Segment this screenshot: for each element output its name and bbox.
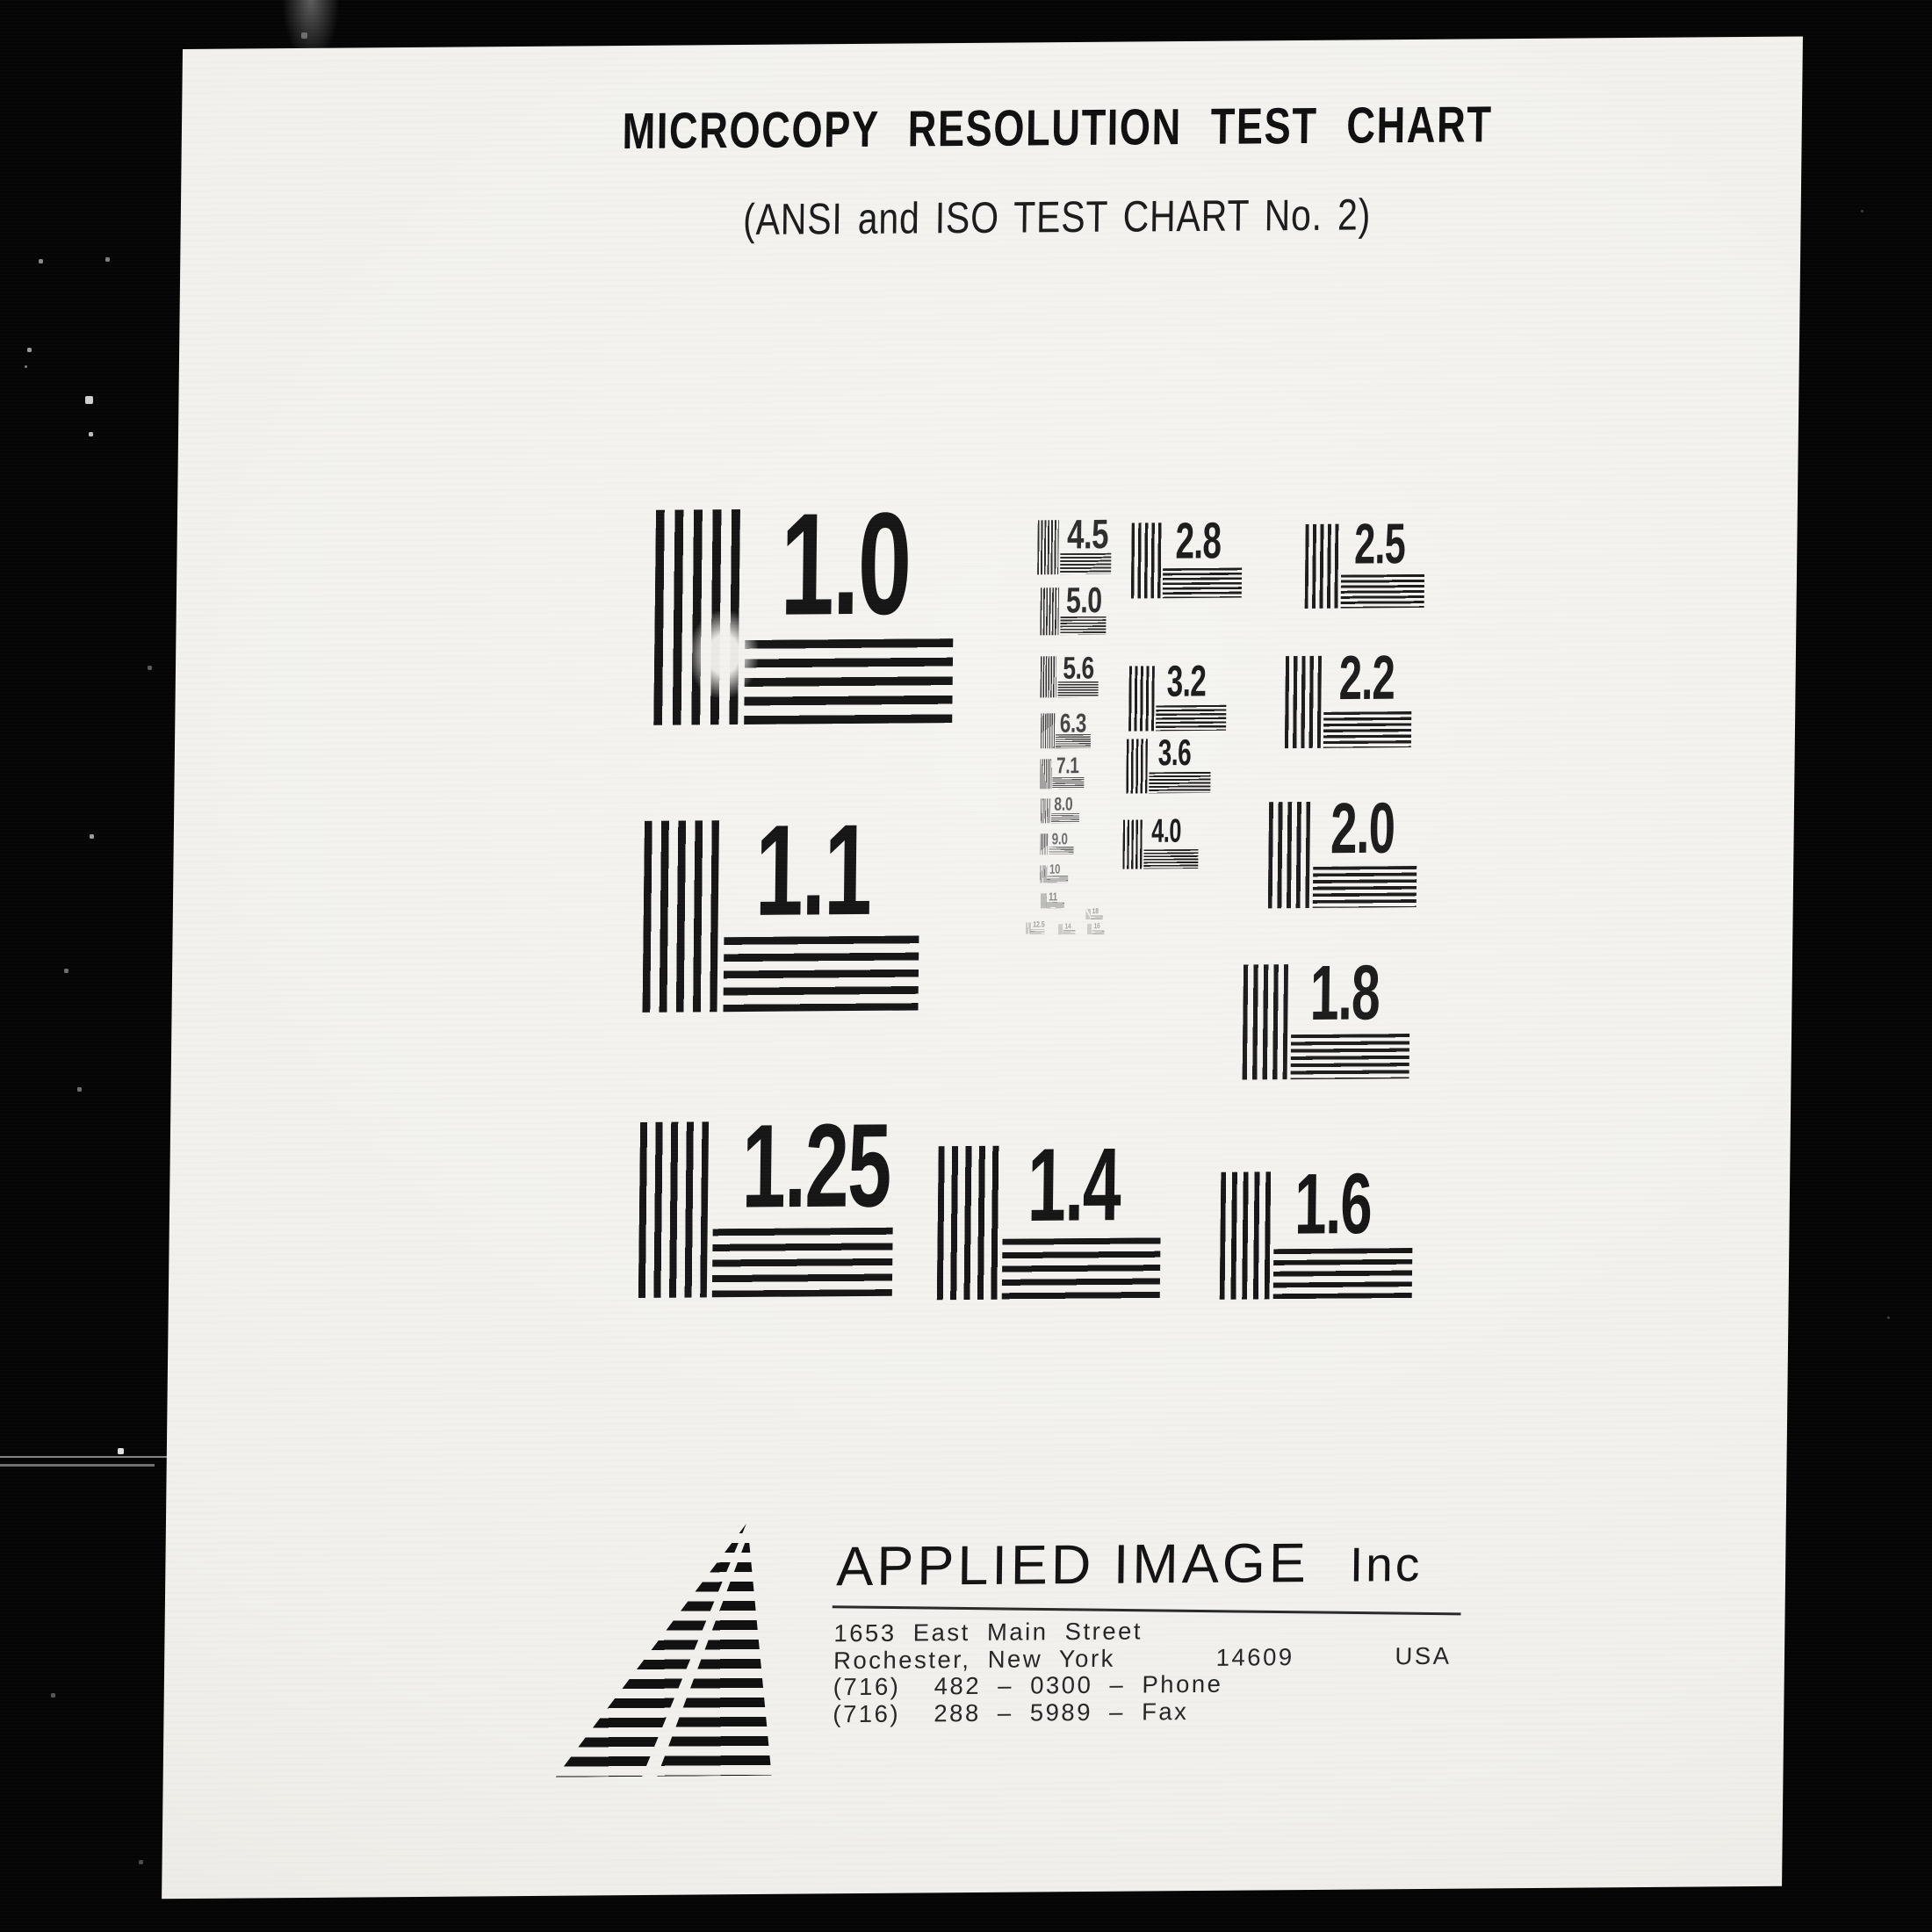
pattern-label: 4.0 [1151,819,1198,846]
pattern-label: 1.6 [1294,1171,1414,1238]
pattern-3-6: 3.6 [1126,739,1211,794]
pattern-11: 11 [1041,893,1064,908]
vertical-bars [1243,964,1289,1079]
pattern-1-4: 1.4 [937,1144,1162,1300]
address-block: 1653 East Main Street Rochester, New Yor… [833,1616,1452,1728]
pattern-10: 10 [1040,865,1069,883]
pattern-label: 16 [1093,924,1104,930]
pattern-6-3: 6.3 [1041,713,1091,748]
vertical-bars [638,1121,710,1298]
horizontal-bars [1313,866,1417,908]
pattern-4-0: 4.0 [1122,819,1198,869]
pattern-14: 14 [1058,924,1075,934]
horizontal-bars [1273,1248,1413,1299]
fax-line: (716) 288 – 5989 – Fax [833,1696,1451,1727]
pattern-label: 8.0 [1054,798,1079,813]
vertical-bars [1026,922,1030,934]
horizontal-bars [1340,574,1424,608]
horizontal-bars [723,935,919,1012]
address-city: Rochester, New York 14609 USA [833,1642,1452,1674]
vertical-bars [1040,865,1047,883]
pattern-label: 10 [1049,865,1069,876]
horizontal-bars [1063,930,1076,934]
horizontal-bars [1091,915,1103,919]
film-scan-background: MICROCOPY RESOLUTION TEST CHART (ANSI an… [0,0,1932,1932]
pattern-1-1: 1.1 [642,818,919,1012]
test-chart-card: MICROCOPY RESOLUTION TEST CHART (ANSI an… [162,37,1803,1900]
pattern-2-8: 2.8 [1131,523,1243,599]
pattern-label: 14 [1064,924,1075,930]
vertical-bars [1305,524,1339,609]
horizontal-bars [1092,930,1105,934]
pattern-2-2: 2.2 [1285,655,1412,748]
pattern-2-5: 2.5 [1305,523,1425,609]
pattern-3-2: 3.2 [1128,666,1227,732]
pattern-label: 7.1 [1056,759,1085,776]
pattern-label: 2.8 [1175,523,1243,563]
horizontal-bars [1149,772,1210,794]
vertical-bars [1220,1171,1271,1299]
pattern-label: 2.0 [1330,801,1417,857]
pattern-label: 18 [1092,909,1103,915]
vertical-bars [1285,656,1322,748]
vertical-bars [1041,713,1055,748]
pattern-label: 2.2 [1338,655,1412,704]
pattern-16: 16 [1087,924,1104,934]
pattern-label: 4.5 [1067,520,1112,552]
horizontal-bars [745,638,954,724]
pattern-label: 1.8 [1309,963,1410,1025]
scratch-line [0,1464,155,1467]
vertical-bars [1131,523,1162,598]
pattern-2-0: 2.0 [1268,801,1417,908]
chart-subtitle: (ANSI and ISO TEST CHART No. 2) [312,186,1801,249]
pattern-label: 3.6 [1158,739,1211,768]
vertical-bars [1128,666,1155,731]
horizontal-bars [1323,711,1411,748]
vertical-bars [1040,833,1049,854]
vertical-bars [1041,798,1050,823]
pattern-label: 5.0 [1066,588,1107,616]
pattern-label: 9.0 [1052,833,1074,846]
pattern-8-0: 8.0 [1041,798,1079,823]
vertical-bars [1037,520,1059,574]
horizontal-bars [1291,1034,1410,1079]
vertical-bars [1041,656,1057,697]
pattern-label: 2.5 [1354,523,1424,568]
pattern-label: 1.0 [780,508,955,623]
company-name: APPLIED IMAGE [836,1532,1309,1597]
pattern-label: 5.6 [1063,656,1099,681]
emulsion-damage-spot [689,611,759,698]
scratch-line [0,1456,186,1458]
pattern-label: 11 [1049,893,1064,902]
pattern-label: 1.4 [1027,1144,1162,1226]
applied-image-logo-triangle-icon [556,1524,775,1777]
pattern-9-0: 9.0 [1040,833,1073,854]
pattern-18: 18 [1086,909,1103,919]
pattern-label: 12.5 [1033,922,1045,928]
vertical-bars [642,820,719,1013]
horizontal-bars [1002,1238,1161,1300]
pattern-1-6: 1.6 [1220,1171,1414,1300]
company-wordmark: APPLIED IMAGEInc [836,1531,1423,1598]
horizontal-bars [712,1227,893,1297]
dust-specks [0,0,1,1]
horizontal-bars [1163,568,1242,598]
vertical-bars [1268,802,1311,908]
horizontal-bars [1031,929,1045,934]
horizontal-bars [1156,705,1226,732]
company-suffix: Inc [1350,1537,1423,1592]
pattern-label: 3.2 [1167,666,1228,700]
pattern-label: 1.1 [755,818,920,920]
vertical-bars [937,1146,999,1301]
chart-title: MICROCOPY RESOLUTION TEST CHART [314,93,1803,163]
vertical-bars [1122,819,1143,869]
pattern-5-0: 5.0 [1040,588,1106,636]
pattern-label: 6.3 [1060,713,1091,734]
vertical-bars [1040,588,1059,635]
pattern-7-1: 7.1 [1040,759,1085,789]
pattern-1-25: 1.25 [638,1121,895,1298]
vertical-bars [1040,759,1052,789]
vertical-bars [1041,893,1047,908]
pattern-label: 1.25 [741,1121,894,1215]
pattern-1-8: 1.8 [1243,963,1411,1080]
logo-underline [833,1605,1461,1615]
pattern-12-5: 12.5 [1026,922,1045,934]
vertical-bars [1126,739,1148,793]
pattern-4-5: 4.5 [1037,520,1112,575]
pattern-5-6: 5.6 [1041,656,1099,698]
horizontal-bars [1143,849,1198,869]
